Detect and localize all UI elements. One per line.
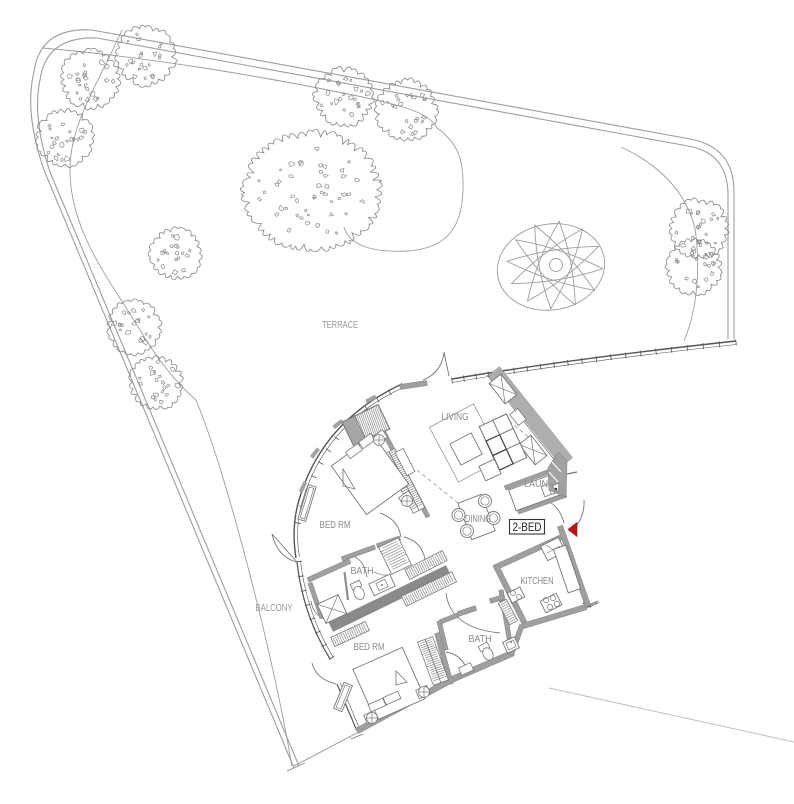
svg-text:KITCHEN: KITCHEN	[521, 575, 554, 587]
svg-text:BED RM: BED RM	[320, 519, 351, 531]
svg-text:TERRACE: TERRACE	[322, 319, 358, 331]
svg-text:DINING: DINING	[465, 513, 491, 525]
svg-text:2-BED: 2-BED	[513, 522, 542, 534]
svg-text:LAUN: LAUN	[524, 478, 548, 490]
svg-text:BATH: BATH	[351, 565, 374, 577]
svg-text:BED RM: BED RM	[354, 641, 385, 653]
svg-text:BALCONY: BALCONY	[256, 602, 293, 614]
svg-text:BATH: BATH	[469, 633, 492, 645]
svg-text:LIVING: LIVING	[442, 411, 469, 423]
